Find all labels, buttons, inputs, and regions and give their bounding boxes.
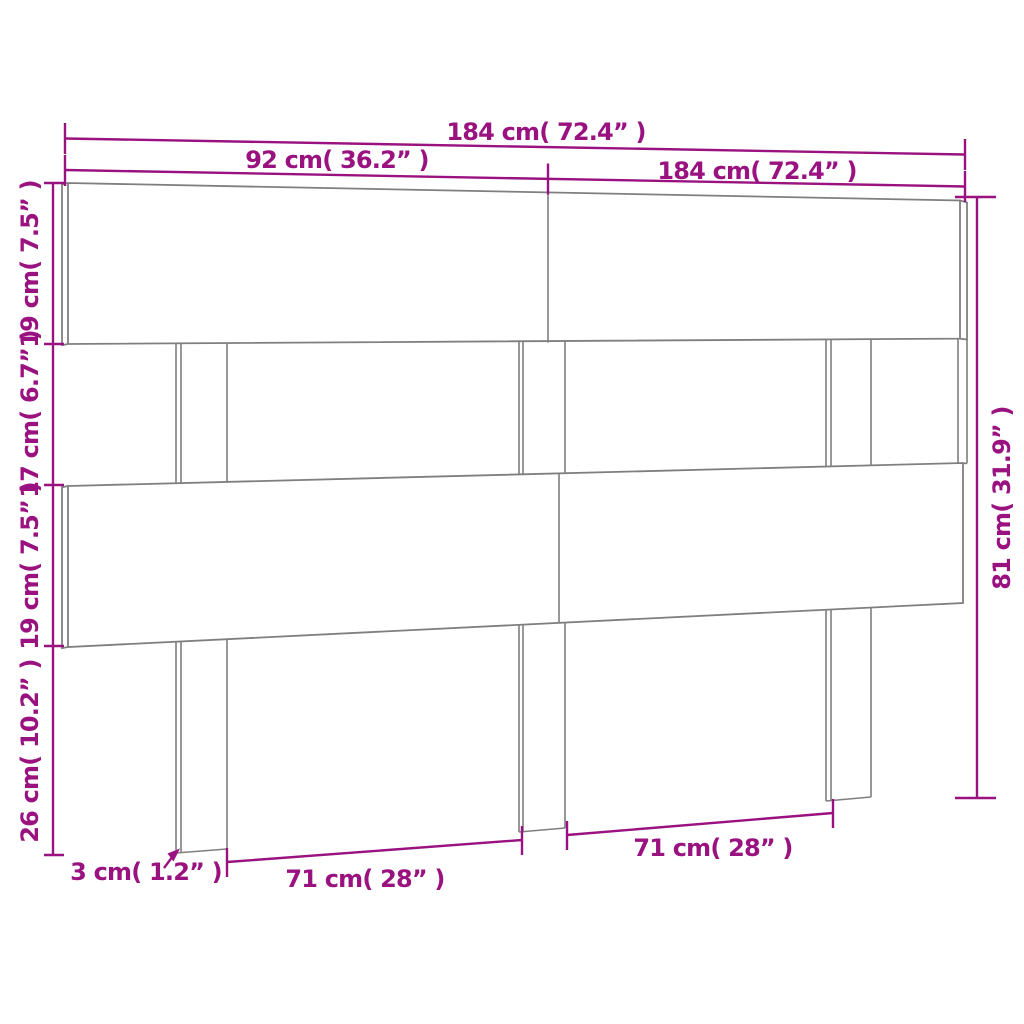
left-leg xyxy=(176,639,227,853)
dim-bottom-span-left: 71 cm( 28” ) xyxy=(227,826,522,893)
top-board xyxy=(62,183,967,345)
leg-bottom-edge xyxy=(519,828,565,832)
middle-board xyxy=(62,463,963,648)
dim-label-left-middle-board: 19 cm( 7.5” ) xyxy=(16,482,44,650)
headboard-dimension-diagram: 184 cm( 72.4” ) 92 cm( 36.2” ) 184 cm( 7… xyxy=(0,0,1024,1024)
dim-bottom-span-right: 71 cm( 28” ) xyxy=(567,799,833,862)
dim-label-top-half: 92 cm( 36.2” ) xyxy=(245,146,428,174)
top-board-front-face xyxy=(68,183,960,344)
dim-label-bottom-span-right: 71 cm( 28” ) xyxy=(633,834,792,862)
dim-label-bottom-span-left: 71 cm( 28” ) xyxy=(285,865,444,893)
dim-top-half-width: 92 cm( 36.2” ) 184 cm( 72.4” ) xyxy=(65,146,965,202)
diagram-canvas: 184 cm( 72.4” ) 92 cm( 36.2” ) 184 cm( 7… xyxy=(0,0,1024,1024)
dimension-annotations: 184 cm( 72.4” ) 92 cm( 36.2” ) 184 cm( 7… xyxy=(16,118,1016,893)
dimension-line xyxy=(227,840,522,862)
right-end-strip xyxy=(958,339,967,464)
middle-post xyxy=(519,341,565,475)
dim-label-top-right: 184 cm( 72.4” ) xyxy=(657,157,856,185)
dim-right-total-height: 81 cm( 31.9” ) xyxy=(955,197,1016,798)
dim-label-left-top-board: 19 cm( 7.5” ) xyxy=(16,180,44,348)
dim-label-left-gap: 17 cm( 6.7” ) xyxy=(16,330,44,498)
dim-post-thickness: 3 cm( 1.2” ) xyxy=(70,849,222,887)
legs xyxy=(176,608,871,854)
right-post xyxy=(826,339,871,467)
middle-board-front-face xyxy=(68,463,963,647)
gap-posts xyxy=(176,339,967,484)
dim-label-post-thickness: 3 cm( 1.2” ) xyxy=(70,858,222,886)
dim-label-top-total: 184 cm( 72.4” ) xyxy=(446,118,645,146)
dim-label-right-total-height: 81 cm( 31.9” ) xyxy=(988,406,1016,589)
headboard-drawing xyxy=(62,183,967,853)
dimension-line xyxy=(567,813,833,835)
dim-label-left-leg: 26 cm( 10.2” ) xyxy=(16,659,44,842)
right-leg xyxy=(826,608,871,802)
dim-left-height-chain: 19 cm( 7.5” ) 17 cm( 6.7” ) 19 cm( 7.5” … xyxy=(16,180,64,855)
left-post xyxy=(176,343,227,483)
middle-leg xyxy=(519,623,565,832)
top-board-right-side-face xyxy=(960,201,967,340)
leg-bottom-edge xyxy=(176,849,227,853)
